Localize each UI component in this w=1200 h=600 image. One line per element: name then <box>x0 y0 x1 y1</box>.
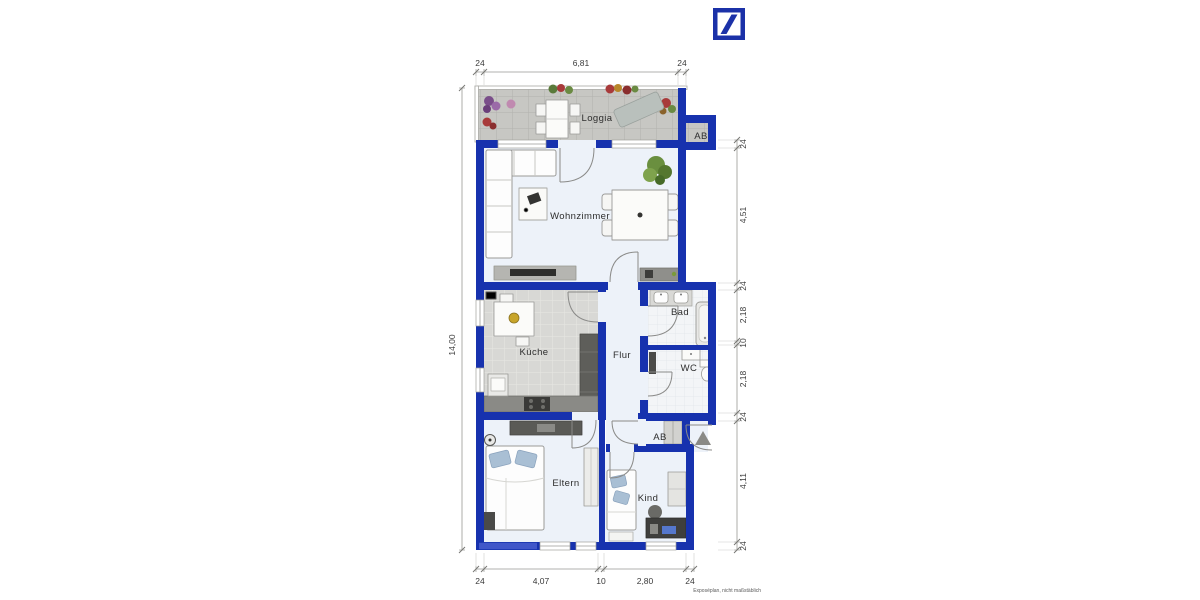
label-loggia: Loggia <box>582 113 613 124</box>
dim-top-0: 24 <box>475 58 485 68</box>
dim-bottom-4: 24 <box>685 576 695 586</box>
kind-cabinet <box>668 472 686 506</box>
label-bad: Bad <box>671 307 689 318</box>
window-wohnzimmer-left <box>498 140 546 148</box>
tall-cabinet <box>584 448 598 506</box>
dim-right-1: 4,51 <box>738 206 748 223</box>
single-bed <box>607 470 636 541</box>
dim-bottom-2: 10 <box>596 576 606 586</box>
floor-plan-canvas: Loggia AB Wohnzimmer Küche Flur Bad WC A… <box>0 0 1200 600</box>
radiator <box>649 352 656 374</box>
label-ab-flur: AB <box>653 432 666 443</box>
dim-right-0: 24 <box>738 139 748 149</box>
window-eltern-1 <box>540 542 570 550</box>
deutsche-bank-logo <box>713 8 745 40</box>
coffee-table <box>519 188 547 220</box>
label-ab-loggia: AB <box>694 131 707 142</box>
nightstand <box>484 512 495 530</box>
dim-top-2: 24 <box>677 58 687 68</box>
plant-pink <box>507 100 516 109</box>
laptop <box>662 526 676 534</box>
wardrobe <box>510 421 582 435</box>
dim-right-3: 2,18 <box>738 306 748 323</box>
dim-bottom-0: 24 <box>475 576 485 586</box>
kitchen-appliance <box>486 292 496 299</box>
label-wc: WC <box>681 363 698 374</box>
dim-right-8: 24 <box>738 541 748 551</box>
stove <box>524 397 550 411</box>
label-kind: Kind <box>638 493 659 504</box>
dim-right-5: 2,18 <box>738 370 748 387</box>
dim-bottom-1: 4,07 <box>533 576 550 586</box>
dim-bottom-3: 2,80 <box>637 576 654 586</box>
dim-left: 14,00 <box>447 85 465 553</box>
label-wohnzimmer: Wohnzimmer <box>550 211 610 222</box>
dim-top-1: 6,81 <box>573 58 590 68</box>
label-flur: Flur <box>613 350 631 361</box>
window-kueche-2 <box>476 368 484 392</box>
label-kueche: Küche <box>520 347 549 358</box>
dim-right: 24 4,51 24 2,18 10 2,18 24 4,11 24 <box>718 137 748 553</box>
dining-table <box>602 190 678 240</box>
window-wohnzimmer-right <box>612 140 656 148</box>
dim-left-0: 14,00 <box>447 334 457 356</box>
dim-bottom: 24 4,07 10 2,80 24 <box>473 553 697 586</box>
window-kueche-1 <box>476 300 484 326</box>
dim-right-2: 24 <box>738 281 748 291</box>
disclaimer-text: Exposéplan, nicht maßstäblich <box>693 588 761 594</box>
watermark <box>479 543 537 549</box>
vanity <box>650 290 692 306</box>
dim-top: 24 6,81 24 <box>473 58 689 85</box>
label-eltern: Eltern <box>552 478 579 489</box>
dim-right-6: 24 <box>738 412 748 422</box>
window-kind <box>646 542 676 550</box>
speaker-dot <box>489 439 492 442</box>
dim-right-4: 10 <box>738 338 748 348</box>
tv-board <box>494 266 576 280</box>
window-eltern-2 <box>576 542 596 550</box>
sideboard <box>640 268 684 281</box>
dim-right-7: 4,11 <box>738 473 748 489</box>
